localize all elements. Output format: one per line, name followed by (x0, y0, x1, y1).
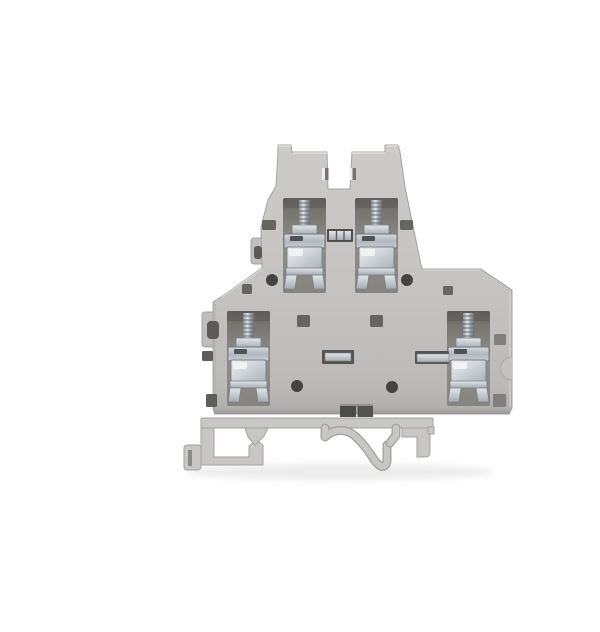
left-edge-slot-upper (202, 351, 213, 361)
lower-left-terminal (227, 311, 270, 406)
lower-test-hole-right (386, 381, 398, 393)
left-edge-slot-lower (206, 394, 217, 407)
terminal-block-illustration (40, 16, 600, 616)
upper-latch-notch (254, 246, 262, 259)
jumper-link (327, 229, 353, 242)
lower-top-slot-left (242, 284, 252, 294)
upper-left-terminal (283, 198, 326, 293)
foot-left-end-block (184, 445, 201, 470)
product-photo: Gray double-level DIN rail screw termina… (40, 16, 600, 616)
vent-slit-highlight-right (350, 168, 353, 180)
lower-test-hole-left (291, 380, 303, 392)
lower-top-slot-right (443, 286, 453, 295)
lower-latch-notch (207, 321, 219, 339)
vent-slit-right (353, 168, 357, 180)
upper-side-slot-right (400, 220, 413, 230)
vent-square-right (370, 315, 383, 327)
right-edge-slot-lower (493, 394, 506, 407)
upper-right-terminal (355, 198, 398, 293)
ground-shadow (185, 464, 495, 480)
right-edge-slot-upper (494, 334, 506, 345)
jumper-slot-left (322, 350, 354, 364)
lower-right-terminal (447, 311, 490, 406)
upper-test-hole-left (266, 274, 278, 286)
vent-square-left (297, 315, 310, 327)
upper-test-hole-right (401, 274, 413, 286)
foot-bar-end-step (428, 427, 434, 434)
jumper-slot-right (415, 351, 449, 364)
upper-side-slot-left (262, 220, 276, 230)
vent-slit-left (325, 168, 329, 180)
vent-slit-highlight-left (322, 168, 325, 180)
cross-busbar (417, 354, 449, 362)
foot-left-end-slot (188, 450, 192, 466)
